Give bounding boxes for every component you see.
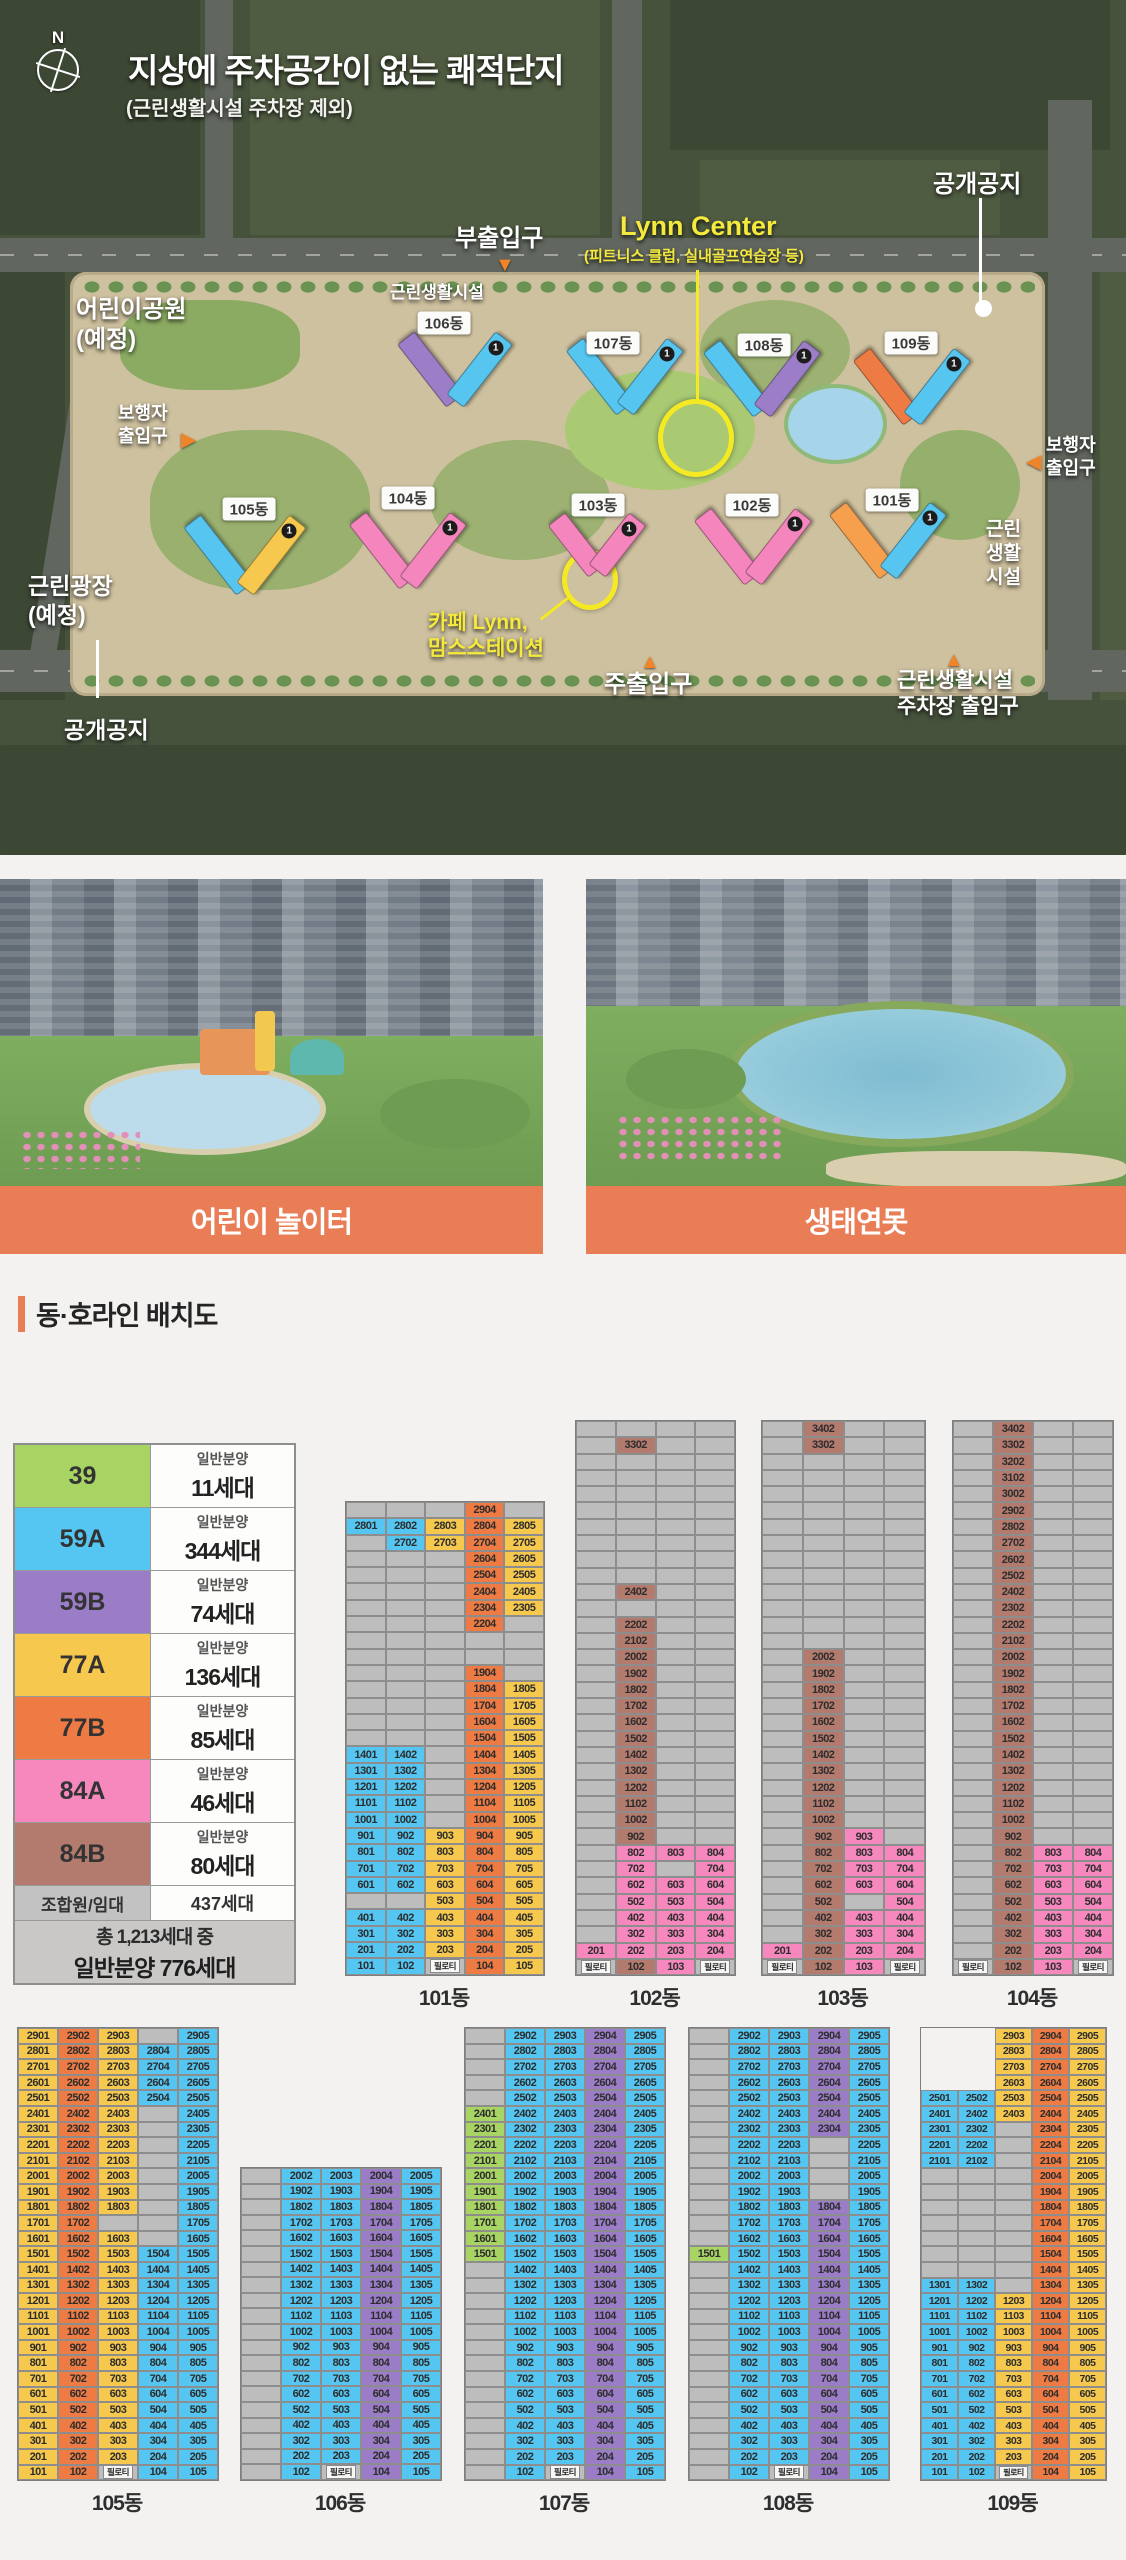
- unit-cell: 203: [321, 2449, 361, 2465]
- unit-cell: 1202: [803, 1780, 844, 1796]
- unit-cell: 1902: [281, 2184, 321, 2200]
- grid-row: [576, 1486, 735, 1502]
- unit-cell: [762, 1665, 803, 1681]
- unit-cell: 1004: [465, 1812, 505, 1828]
- unit-cell: [656, 1780, 696, 1796]
- unit-cell: [1073, 1665, 1113, 1681]
- unit-cell: 2302: [58, 2122, 98, 2138]
- unit-cell: 101: [921, 2465, 958, 2481]
- grid-row: [762, 1486, 925, 1502]
- unit-cell: [762, 1502, 803, 1518]
- grid-row: 1702170317041705: [241, 2215, 441, 2231]
- unit-cell: 2002: [616, 1649, 656, 1665]
- unit-cell: [241, 2418, 281, 2434]
- unit-cell: 1605: [401, 2230, 441, 2246]
- unit-cell: [656, 1633, 696, 1649]
- grid-row: 22012202220322042205: [465, 2137, 665, 2153]
- grid-row: 1402140314041405: [241, 2262, 441, 2278]
- unit-cell: 2301: [921, 2122, 958, 2138]
- unit-cell: 502: [505, 2402, 545, 2418]
- unit-cell: 101: [346, 1958, 386, 1974]
- unit-cell: 503: [425, 1893, 465, 1909]
- unit-cell: [241, 2215, 281, 2231]
- unit-cell: 405: [1069, 2418, 1106, 2434]
- unit-cell: 103: [844, 1959, 885, 1975]
- unit-cell: 1405: [625, 2262, 665, 2278]
- unit-cell: [884, 1600, 925, 1616]
- unit-cell: 2801: [346, 1518, 386, 1534]
- unit-cell: 804: [465, 1844, 505, 1860]
- unit-cell: 1002: [729, 2324, 769, 2340]
- unit-cell: 201: [921, 2449, 958, 2465]
- unit-cell: 1404: [465, 1746, 505, 1762]
- unit-cell: 603: [1033, 1877, 1073, 1893]
- unit-cell: 601: [921, 2387, 958, 2403]
- unit-cell: 402: [993, 1910, 1033, 1926]
- unit-cell: [465, 2309, 505, 2325]
- unit-cell: 1504: [1032, 2246, 1069, 2262]
- unit-cell: 2704: [465, 1535, 505, 1551]
- unit-cell: 303: [98, 2433, 138, 2449]
- unit-cell: [504, 1502, 544, 1518]
- unit-cell: 1804: [585, 2200, 625, 2216]
- unit-cell: 1404: [138, 2262, 178, 2278]
- grid-row: 1402: [953, 1747, 1113, 1763]
- unit-cell: 402: [958, 2418, 995, 2434]
- unit-cell: 2203: [769, 2137, 809, 2153]
- grid-row: 602603604: [953, 1877, 1113, 1893]
- unit-cell: [762, 1600, 803, 1616]
- label-gonggae-top: 공개공지: [933, 170, 1021, 200]
- legend-sale-label: 일반분양: [197, 1449, 249, 1469]
- grid-row: 필로티102103필로티: [762, 1959, 925, 1975]
- unit-cell: 2201: [465, 2137, 505, 2153]
- unit-cell: 2002: [58, 2168, 98, 2184]
- unit-cell: 1703: [769, 2215, 809, 2231]
- unit-cell: [884, 1682, 925, 1698]
- unit-cell: [884, 1535, 925, 1551]
- unit-cell: 1304: [138, 2278, 178, 2294]
- unit-cell: 1302: [386, 1763, 426, 1779]
- unit-cell: 403: [425, 1909, 465, 1925]
- unit-cell: [241, 2355, 281, 2371]
- grid-row: 15041505: [346, 1730, 544, 1746]
- unit-cell: [576, 1600, 616, 1616]
- grid-row: 802803804: [762, 1845, 925, 1861]
- grid-row: 1302: [576, 1763, 735, 1779]
- unit-cell: [425, 1665, 465, 1681]
- unit-cell: 2703: [425, 1535, 465, 1551]
- unit-cell: 705: [1069, 2371, 1106, 2387]
- unit-cell: 603: [769, 2387, 809, 2403]
- unit-cell: 2403: [995, 2106, 1032, 2122]
- unit-cell: [695, 1633, 735, 1649]
- unit-cell: 203: [98, 2449, 138, 2465]
- unit-cell: [656, 1421, 696, 1437]
- grid-row: 19011902190319041905: [465, 2184, 665, 2200]
- unit-cell: 603: [995, 2387, 1032, 2403]
- unit-cell: [844, 1714, 885, 1730]
- unit-cell: 102: [958, 2465, 995, 2481]
- grid-row: 10011002100310041005: [921, 2324, 1106, 2340]
- grid-row: 10011002100310041005: [18, 2324, 218, 2340]
- unit-cell: 2405: [625, 2106, 665, 2122]
- unit-cell: [921, 2246, 958, 2262]
- grid-row: 28012802280328042805: [18, 2044, 218, 2060]
- unit-cell: [689, 2278, 729, 2294]
- unit-cell: 1302: [505, 2278, 545, 2294]
- grid-row: 302303304305: [689, 2433, 889, 2449]
- unit-cell: [465, 2059, 505, 2075]
- grid-row: 702703704: [953, 1861, 1113, 1877]
- unit-cell: [386, 1893, 426, 1909]
- unit-cell: 1203: [321, 2293, 361, 2309]
- unit-cell: 402: [386, 1909, 426, 1925]
- unit-cell: 2304: [809, 2122, 849, 2138]
- unit-cell: 1101: [921, 2309, 958, 2325]
- unit-cell: 602: [993, 1877, 1033, 1893]
- unit-cell: [616, 1421, 656, 1437]
- unit-cell: 1504: [138, 2246, 178, 2262]
- unit-cell: 303: [1033, 1926, 1073, 1942]
- grid-row: 503504505: [346, 1893, 544, 1909]
- unit-cell: [241, 2230, 281, 2246]
- grid-row: 1702: [953, 1698, 1113, 1714]
- unit-cell: 1003: [545, 2324, 585, 2340]
- unit-cell: 403: [769, 2418, 809, 2434]
- unit-cell: 105: [1069, 2465, 1106, 2481]
- unit-cell: [953, 1568, 993, 1584]
- unit-cell: 2702: [729, 2059, 769, 2075]
- unit-cell: 1602: [58, 2231, 98, 2247]
- unit-cell: 1402: [58, 2262, 98, 2278]
- unit-cell: 2401: [465, 2106, 505, 2122]
- unit-cell: 2804: [585, 2044, 625, 2060]
- line-plaza: [96, 640, 99, 698]
- unit-cell: [762, 1519, 803, 1535]
- unit-cell: [656, 1747, 696, 1763]
- grid-row: 402403404: [953, 1910, 1113, 1926]
- grid-row: 702703704705: [465, 2371, 665, 2387]
- grid-row: 801802803804805: [921, 2355, 1106, 2371]
- unit-cell: [346, 1551, 386, 1567]
- unit-cell: 1904: [585, 2184, 625, 2200]
- unit-cell: 1603: [545, 2231, 585, 2247]
- grid-row: 1502: [576, 1731, 735, 1747]
- unit-cell: 2604: [465, 1551, 505, 1567]
- grid-row: 502503504: [576, 1894, 735, 1910]
- unit-cell: 2005: [178, 2168, 218, 2184]
- unit-cell: [616, 1454, 656, 1470]
- unit-cell: 2802: [58, 2044, 98, 2060]
- unit-cell: 2102: [958, 2153, 995, 2169]
- unit-cell: 304: [884, 1926, 925, 1942]
- unit-cell: 1502: [58, 2246, 98, 2262]
- grid-row: 1102110311041105: [241, 2308, 441, 2324]
- grid-row: 2204: [346, 1616, 544, 1632]
- unit-cell: 2504: [138, 2090, 178, 2106]
- unit-cell: [953, 1731, 993, 1747]
- unit-cell: [576, 1714, 616, 1730]
- unit-cell: 2302: [958, 2122, 995, 2138]
- unit-cell: 1302: [58, 2278, 98, 2294]
- unit-cell: 702: [993, 1861, 1033, 1877]
- unit-cell: 302: [505, 2433, 545, 2449]
- unit-cell: 502: [729, 2402, 769, 2418]
- grid-row: 21012102210321042105: [465, 2153, 665, 2169]
- unit-cell: 2405: [504, 1583, 544, 1599]
- unit-cell: 205: [849, 2449, 889, 2465]
- unit-cell: [1033, 1796, 1073, 1812]
- legend-type-count: 일반분양344세대: [151, 1508, 294, 1570]
- unit-cell: [953, 1617, 993, 1633]
- grid-row: 402403404: [762, 1910, 925, 1926]
- unit-cell: 304: [361, 2433, 401, 2449]
- unit-cell: [656, 1682, 696, 1698]
- unit-cell: 104: [809, 2465, 849, 2481]
- unit-cell: [386, 1698, 426, 1714]
- unit-cell: 2502: [993, 1568, 1033, 1584]
- unit-cell: [346, 1535, 386, 1551]
- unit-cell: [465, 2044, 505, 2060]
- unit-cell: 803: [98, 2355, 138, 2371]
- unit-cell: [884, 1519, 925, 1535]
- unit-grid-108동: 2902290329042905280228032804280527022703…: [688, 2027, 890, 2481]
- unit-cell: 201: [576, 1943, 616, 1959]
- unit-cell: 102: [803, 1959, 844, 1975]
- unit-cell: [762, 1535, 803, 1551]
- unit-cell: 2605: [178, 2075, 218, 2091]
- grid-row: 601602603604605: [921, 2387, 1106, 2403]
- unit-cell: 2501: [921, 2090, 958, 2106]
- unit-cell: 2004: [1032, 2168, 1069, 2184]
- unit-cell: 903: [995, 2340, 1032, 2356]
- unit-cell: 1103: [995, 2309, 1032, 2325]
- unit-cell: 2505: [625, 2090, 665, 2106]
- unit-cell: [953, 1828, 993, 1844]
- unit-cell: [995, 2200, 1032, 2216]
- unit-cell: 905: [401, 2340, 441, 2356]
- unit-cell: 1605: [1069, 2231, 1106, 2247]
- unit-cell: 302: [386, 1926, 426, 1942]
- unit-cell: 1905: [178, 2184, 218, 2200]
- unit-cell: 2701: [18, 2059, 58, 2075]
- unit-cell: 705: [401, 2371, 441, 2387]
- unit-cell: [576, 1877, 616, 1893]
- unit-cell: 2504: [809, 2090, 849, 2106]
- unit-cell: 2505: [178, 2090, 218, 2106]
- unit-cell: 203: [656, 1943, 696, 1959]
- unit-cell: [953, 1649, 993, 1665]
- unit-cell: 1502: [281, 2246, 321, 2262]
- pilotis-label: 필로티: [767, 1960, 797, 1974]
- unit-cell: 2703: [995, 2059, 1032, 2075]
- grid-row: 2502250325042505: [689, 2090, 889, 2106]
- unit-cell: [695, 1796, 735, 1812]
- compass-ring: [37, 49, 79, 91]
- unit-cell: [884, 1421, 925, 1437]
- unit-cell: 1402: [505, 2262, 545, 2278]
- unit-cell: 403: [545, 2418, 585, 2434]
- unit-cell: 1001: [18, 2324, 58, 2340]
- unit-cell: [576, 1910, 616, 1926]
- unit-cell: 204: [585, 2449, 625, 2465]
- unit-cell: 2705: [178, 2059, 218, 2075]
- unit-cell: [1073, 1698, 1113, 1714]
- unit-cell: 2102: [729, 2153, 769, 2169]
- unit-cell: [958, 2200, 995, 2216]
- ring-lynn-center: [658, 399, 734, 477]
- unit-cell: [995, 2168, 1032, 2184]
- unit-cell: 404: [695, 1910, 735, 1926]
- unit-cell: [1073, 1796, 1113, 1812]
- unit-cell: 1905: [401, 2184, 441, 2200]
- playground-caption: 어린이 놀이터: [0, 1186, 543, 1254]
- unit-cell: [241, 2371, 281, 2387]
- building-badge-108동: 108동: [738, 334, 791, 357]
- unit-cell: 2402: [993, 1584, 1033, 1600]
- unit-cell: 805: [1069, 2355, 1106, 2371]
- unit-cell: 2304: [1032, 2122, 1069, 2138]
- label-neighborhood-parking: 근린생활시설 주차장 출입구: [897, 668, 1019, 721]
- unit-cell: [576, 1845, 616, 1861]
- unit-cell: [953, 1698, 993, 1714]
- legend-member-count: 437세대: [151, 1886, 294, 1920]
- unit-cell: 2505: [504, 1567, 544, 1583]
- unit-cell: 104: [1032, 2465, 1069, 2481]
- unit-cell: 1204: [585, 2293, 625, 2309]
- unit-cell: [953, 1894, 993, 1910]
- unit-cell: [884, 1649, 925, 1665]
- unit-cell: [241, 2262, 281, 2278]
- unit-cell: 1202: [958, 2293, 995, 2309]
- grid-row: [762, 1568, 925, 1584]
- grid-row: 2802: [953, 1519, 1113, 1535]
- unit-cell: 1704: [361, 2215, 401, 2231]
- unit-cell: 805: [178, 2355, 218, 2371]
- unit-cell: [995, 2184, 1032, 2200]
- unit-cell: 901: [18, 2340, 58, 2356]
- unit-cell: [1073, 1600, 1113, 1616]
- unit-cell: [695, 1682, 735, 1698]
- unit-cell: [995, 2246, 1032, 2262]
- unit-cell: 2002: [993, 1649, 1033, 1665]
- unit-cell: 704: [1073, 1861, 1113, 1877]
- unit-cell: [465, 2075, 505, 2091]
- unit-cell: 2201: [18, 2137, 58, 2153]
- unit-cell: 2104: [1032, 2153, 1069, 2169]
- unit-cell: 2804: [138, 2044, 178, 2060]
- grid-row: 27012702270327042705: [18, 2059, 218, 2075]
- unit-cell: 901: [346, 1828, 386, 1844]
- unit-cell: 1001: [921, 2324, 958, 2340]
- unit-cell: 801: [346, 1844, 386, 1860]
- grid-row: 17041705: [921, 2215, 1106, 2231]
- unit-cell: 1102: [281, 2308, 321, 2324]
- unit-cell: 1704: [809, 2215, 849, 2231]
- unit-cell: 704: [585, 2371, 625, 2387]
- unit-cell: 1703: [321, 2215, 361, 2231]
- unit-cell: 1203: [545, 2293, 585, 2309]
- unit-cell: 1803: [769, 2200, 809, 2216]
- unit-cell: [386, 1649, 426, 1665]
- legend-count-value: 80세대: [191, 1847, 255, 1881]
- unit-cell: 305: [1069, 2433, 1106, 2449]
- unit-cell: 2702: [58, 2059, 98, 2075]
- playground-photo: [0, 879, 543, 1186]
- grid-label-101동: 101동: [345, 1982, 543, 2012]
- unit-cell: 2402: [505, 2106, 545, 2122]
- unit-cell: 2204: [1032, 2137, 1069, 2153]
- unit-type-legend: 39일반분양11세대59A일반분양344세대59B일반분양74세대77A일반분양…: [13, 1443, 296, 1985]
- unit-cell: 902: [958, 2340, 995, 2356]
- legend-total-line2: 일반분양 776세대: [74, 1949, 236, 1983]
- unit-cell: [884, 1617, 925, 1633]
- unit-cell: [1073, 1584, 1113, 1600]
- unit-cell: 2202: [729, 2137, 769, 2153]
- unit-cell: 2902: [729, 2028, 769, 2044]
- unit-cell: 1405: [401, 2262, 441, 2278]
- unit-cell: [1073, 1763, 1113, 1779]
- unit-cell: [953, 1877, 993, 1893]
- unit-cell: 1902: [803, 1665, 844, 1681]
- unit-cell: 202: [386, 1942, 426, 1958]
- grid-label-104동: 104동: [952, 1982, 1112, 2012]
- unit-cell: 2702: [993, 1535, 1033, 1551]
- unit-cell: 2103: [769, 2153, 809, 2169]
- unit-cell: 802: [958, 2355, 995, 2371]
- unit-cell: 202: [729, 2449, 769, 2465]
- unit-cell: 301: [18, 2433, 58, 2449]
- grid-row: 1502150315041505: [241, 2246, 441, 2262]
- unit-cell: 802: [616, 1845, 656, 1861]
- unit-cell: [1073, 1731, 1113, 1747]
- unit-cell: 2101: [465, 2153, 505, 2169]
- unit-cell: 302: [616, 1926, 656, 1942]
- unit-cell: [465, 1649, 505, 1665]
- grid-row: 1002: [576, 1812, 735, 1828]
- unit-cell: 1002: [281, 2324, 321, 2340]
- unit-cell: [1073, 1568, 1113, 1584]
- unit-cell: 304: [695, 1926, 735, 1942]
- unit-cell: 2002: [803, 1649, 844, 1665]
- pond-photo-panel: 생태연못: [586, 879, 1126, 1254]
- grid-row: 901902903904905: [346, 1828, 544, 1844]
- unit-cell: [762, 1617, 803, 1633]
- legend-type-count: 일반분양80세대: [151, 1823, 294, 1885]
- unit-cell: [241, 2199, 281, 2215]
- unit-cell: 1502: [803, 1731, 844, 1747]
- unit-cell: 1402: [729, 2262, 769, 2278]
- unit-cell: 2004: [361, 2168, 401, 2184]
- section-title: 동·호라인 배치도: [36, 1294, 217, 1333]
- bldg-104-entry-number: 1: [442, 521, 457, 536]
- unit-cell: 1802: [616, 1682, 656, 1698]
- grid-row: 202203204205: [465, 2449, 665, 2465]
- grid-row: 1102: [953, 1796, 1113, 1812]
- grid-row: 1302130313041305: [465, 2278, 665, 2294]
- unit-cell: 1205: [1069, 2293, 1106, 2309]
- unit-cell: 2005: [1069, 2168, 1106, 2184]
- unit-cell: 1904: [361, 2184, 401, 2200]
- unit-cell: [1033, 1633, 1073, 1649]
- unit-cell: 1103: [98, 2309, 138, 2325]
- unit-cell: [504, 1616, 544, 1632]
- unit-cell: 1503: [769, 2246, 809, 2262]
- unit-cell: [695, 1454, 735, 1470]
- grid-row: 220222032205: [689, 2137, 889, 2153]
- unit-cell: 1002: [803, 1812, 844, 1828]
